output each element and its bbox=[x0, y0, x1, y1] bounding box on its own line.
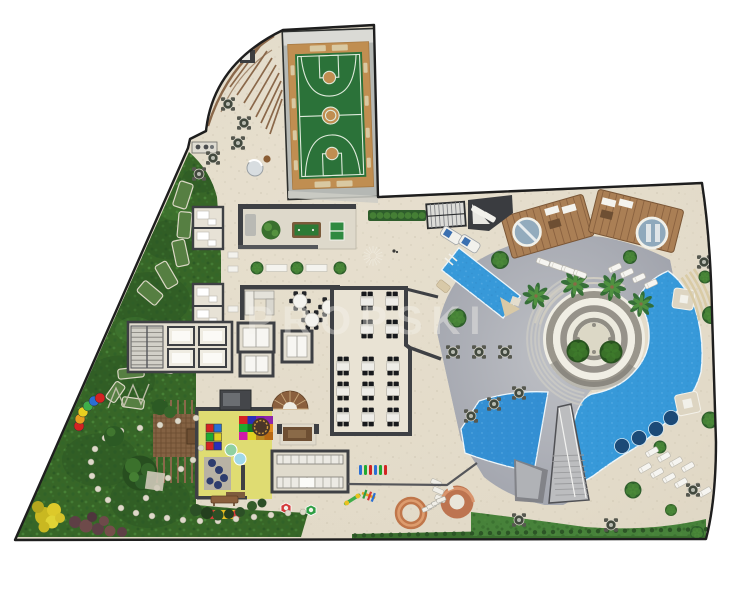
svg-text:OFICINA3D: OFICINA3D bbox=[16, 546, 58, 553]
svg-text:PROPSKI: PROPSKI bbox=[246, 299, 489, 343]
